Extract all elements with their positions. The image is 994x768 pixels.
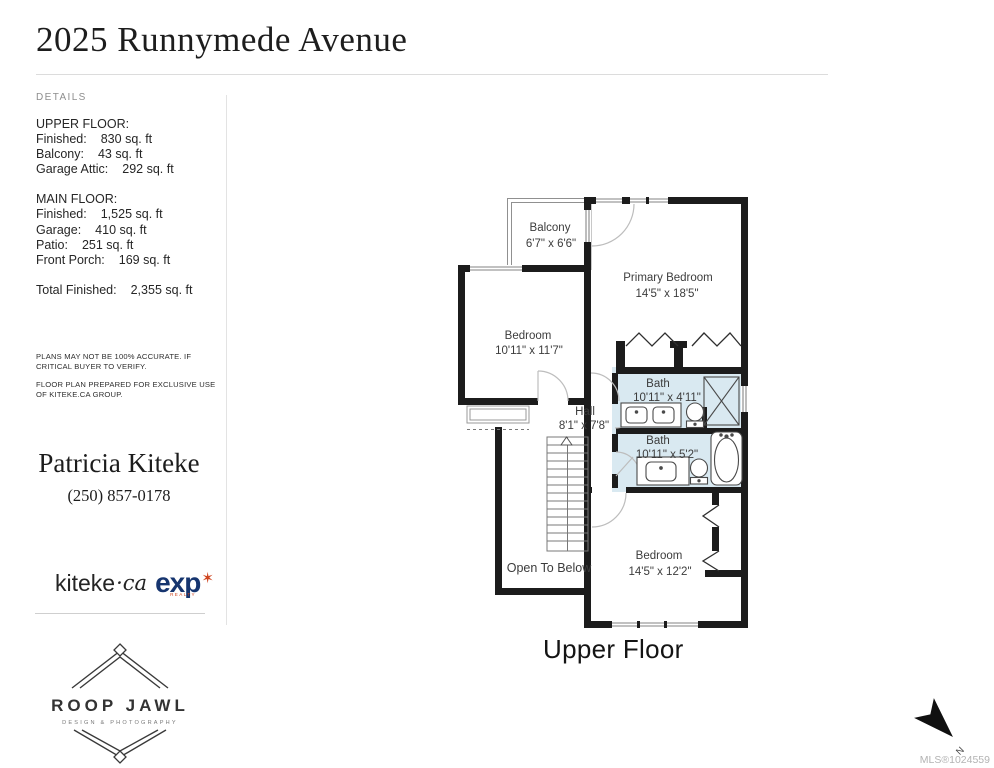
photography-tagline: DESIGN & PHOTOGRAPHY	[62, 720, 178, 726]
bath-upper-label: Bath	[646, 378, 670, 390]
bath-lower-dims: 10'11" x 5'2"	[636, 449, 698, 461]
stairs	[547, 437, 588, 551]
agent-name: Patricia Kiteke	[14, 448, 224, 479]
bath-lower-label: Bath	[646, 435, 670, 447]
exp-realty-logo: exp✶ REALTY	[155, 567, 214, 599]
builtin-closet	[467, 406, 529, 430]
floor-plan-drawing: Balcony 6'7" x 6'6" Primary Bedroom 14'5…	[440, 185, 770, 645]
kiteke-logo-text: kiteke	[55, 570, 115, 597]
kiteke-ca-suffix: ·ca	[116, 571, 147, 595]
page-title: 2025 Runnymede Avenue	[36, 20, 407, 60]
north-arrow-icon	[914, 698, 963, 747]
fact-row: Garage Attic:292 sq. ft	[36, 162, 192, 177]
disclaimer-line-1: PLANS MAY NOT BE 100% ACCURATE. IF CRITI…	[36, 352, 222, 371]
bedroom-bottom-label: Bedroom	[636, 550, 683, 562]
balcony-dims: 6'7" x 6'6"	[526, 238, 576, 250]
bedroom-bottom-dims: 14'5" x 12'2"	[628, 566, 691, 578]
area-details: UPPER FLOOR: Finished:830 sq. ft Balcony…	[36, 117, 192, 313]
primary-bedroom-label: Primary Bedroom	[623, 272, 712, 284]
disclaimer: PLANS MAY NOT BE 100% ACCURATE. IF CRITI…	[36, 352, 222, 408]
main-floor-group: MAIN FLOOR: Finished:1,525 sq. ft Garage…	[36, 192, 192, 267]
open-to-below-label: Open To Below	[507, 561, 593, 575]
vertical-divider	[226, 95, 227, 625]
total-row: Total Finished:2,355 sq. ft	[36, 283, 192, 298]
fact-row: Front Porch:169 sq. ft	[36, 253, 192, 268]
bathtub	[711, 432, 742, 485]
bedroom-left-dims: 10'11" x 11'7"	[495, 345, 563, 357]
hall-dims: 8'1" x 7'8"	[559, 420, 609, 432]
fact-row: Garage:410 sq. ft	[36, 223, 192, 238]
toilet	[687, 403, 704, 428]
logo-diamond-bottom	[114, 751, 126, 763]
upper-floor-heading: UPPER FLOOR:	[36, 117, 192, 132]
total-group: Total Finished:2,355 sq. ft	[36, 283, 192, 298]
main-floor-heading: MAIN FLOOR:	[36, 192, 192, 207]
bath-upper-dims: 10'11" x 4'11"	[633, 392, 701, 404]
floor-caption: Upper Floor	[543, 634, 684, 665]
agent-phone: (250) 857-0178	[14, 486, 224, 506]
agent-block: Patricia Kiteke (250) 857-0178	[14, 448, 224, 506]
vanity	[637, 457, 689, 485]
mls-number: MLS®1024559	[920, 754, 990, 766]
photography-name: ROOP JAWL	[51, 696, 189, 715]
upper-floor-group: UPPER FLOOR: Finished:830 sq. ft Balcony…	[36, 117, 192, 177]
toilet	[691, 459, 708, 484]
fact-row: Patio:251 sq. ft	[36, 238, 192, 253]
double-vanity	[621, 403, 681, 427]
exp-realty-label: REALTY	[170, 592, 196, 597]
bedroom-left-label: Bedroom	[505, 330, 552, 342]
fact-row: Finished:1,525 sq. ft	[36, 207, 192, 222]
fact-row: Finished:830 sq. ft	[36, 132, 192, 147]
hall-label: Hall	[575, 406, 595, 418]
balcony-outline	[508, 199, 592, 270]
balcony-label: Balcony	[530, 222, 571, 234]
floor-plan-sheet: 2025 Runnymede Avenue DETAILS UPPER FLOO…	[0, 0, 994, 768]
title-divider	[36, 74, 828, 75]
details-section-label: DETAILS	[36, 92, 87, 103]
disclaimer-line-2: FLOOR PLAN PREPARED FOR EXCLUSIVE USE OF…	[36, 380, 222, 399]
primary-bedroom-dims: 14'5" x 18'5"	[635, 288, 698, 300]
brand-logos: kiteke·ca exp✶ REALTY	[55, 565, 214, 601]
logo-divider	[35, 613, 205, 614]
photography-logo: ROOP JAWL DESIGN & PHOTOGRAPHY	[45, 638, 195, 766]
fact-row: Balcony:43 sq. ft	[36, 147, 192, 162]
exp-star-icon: ✶	[201, 570, 214, 587]
